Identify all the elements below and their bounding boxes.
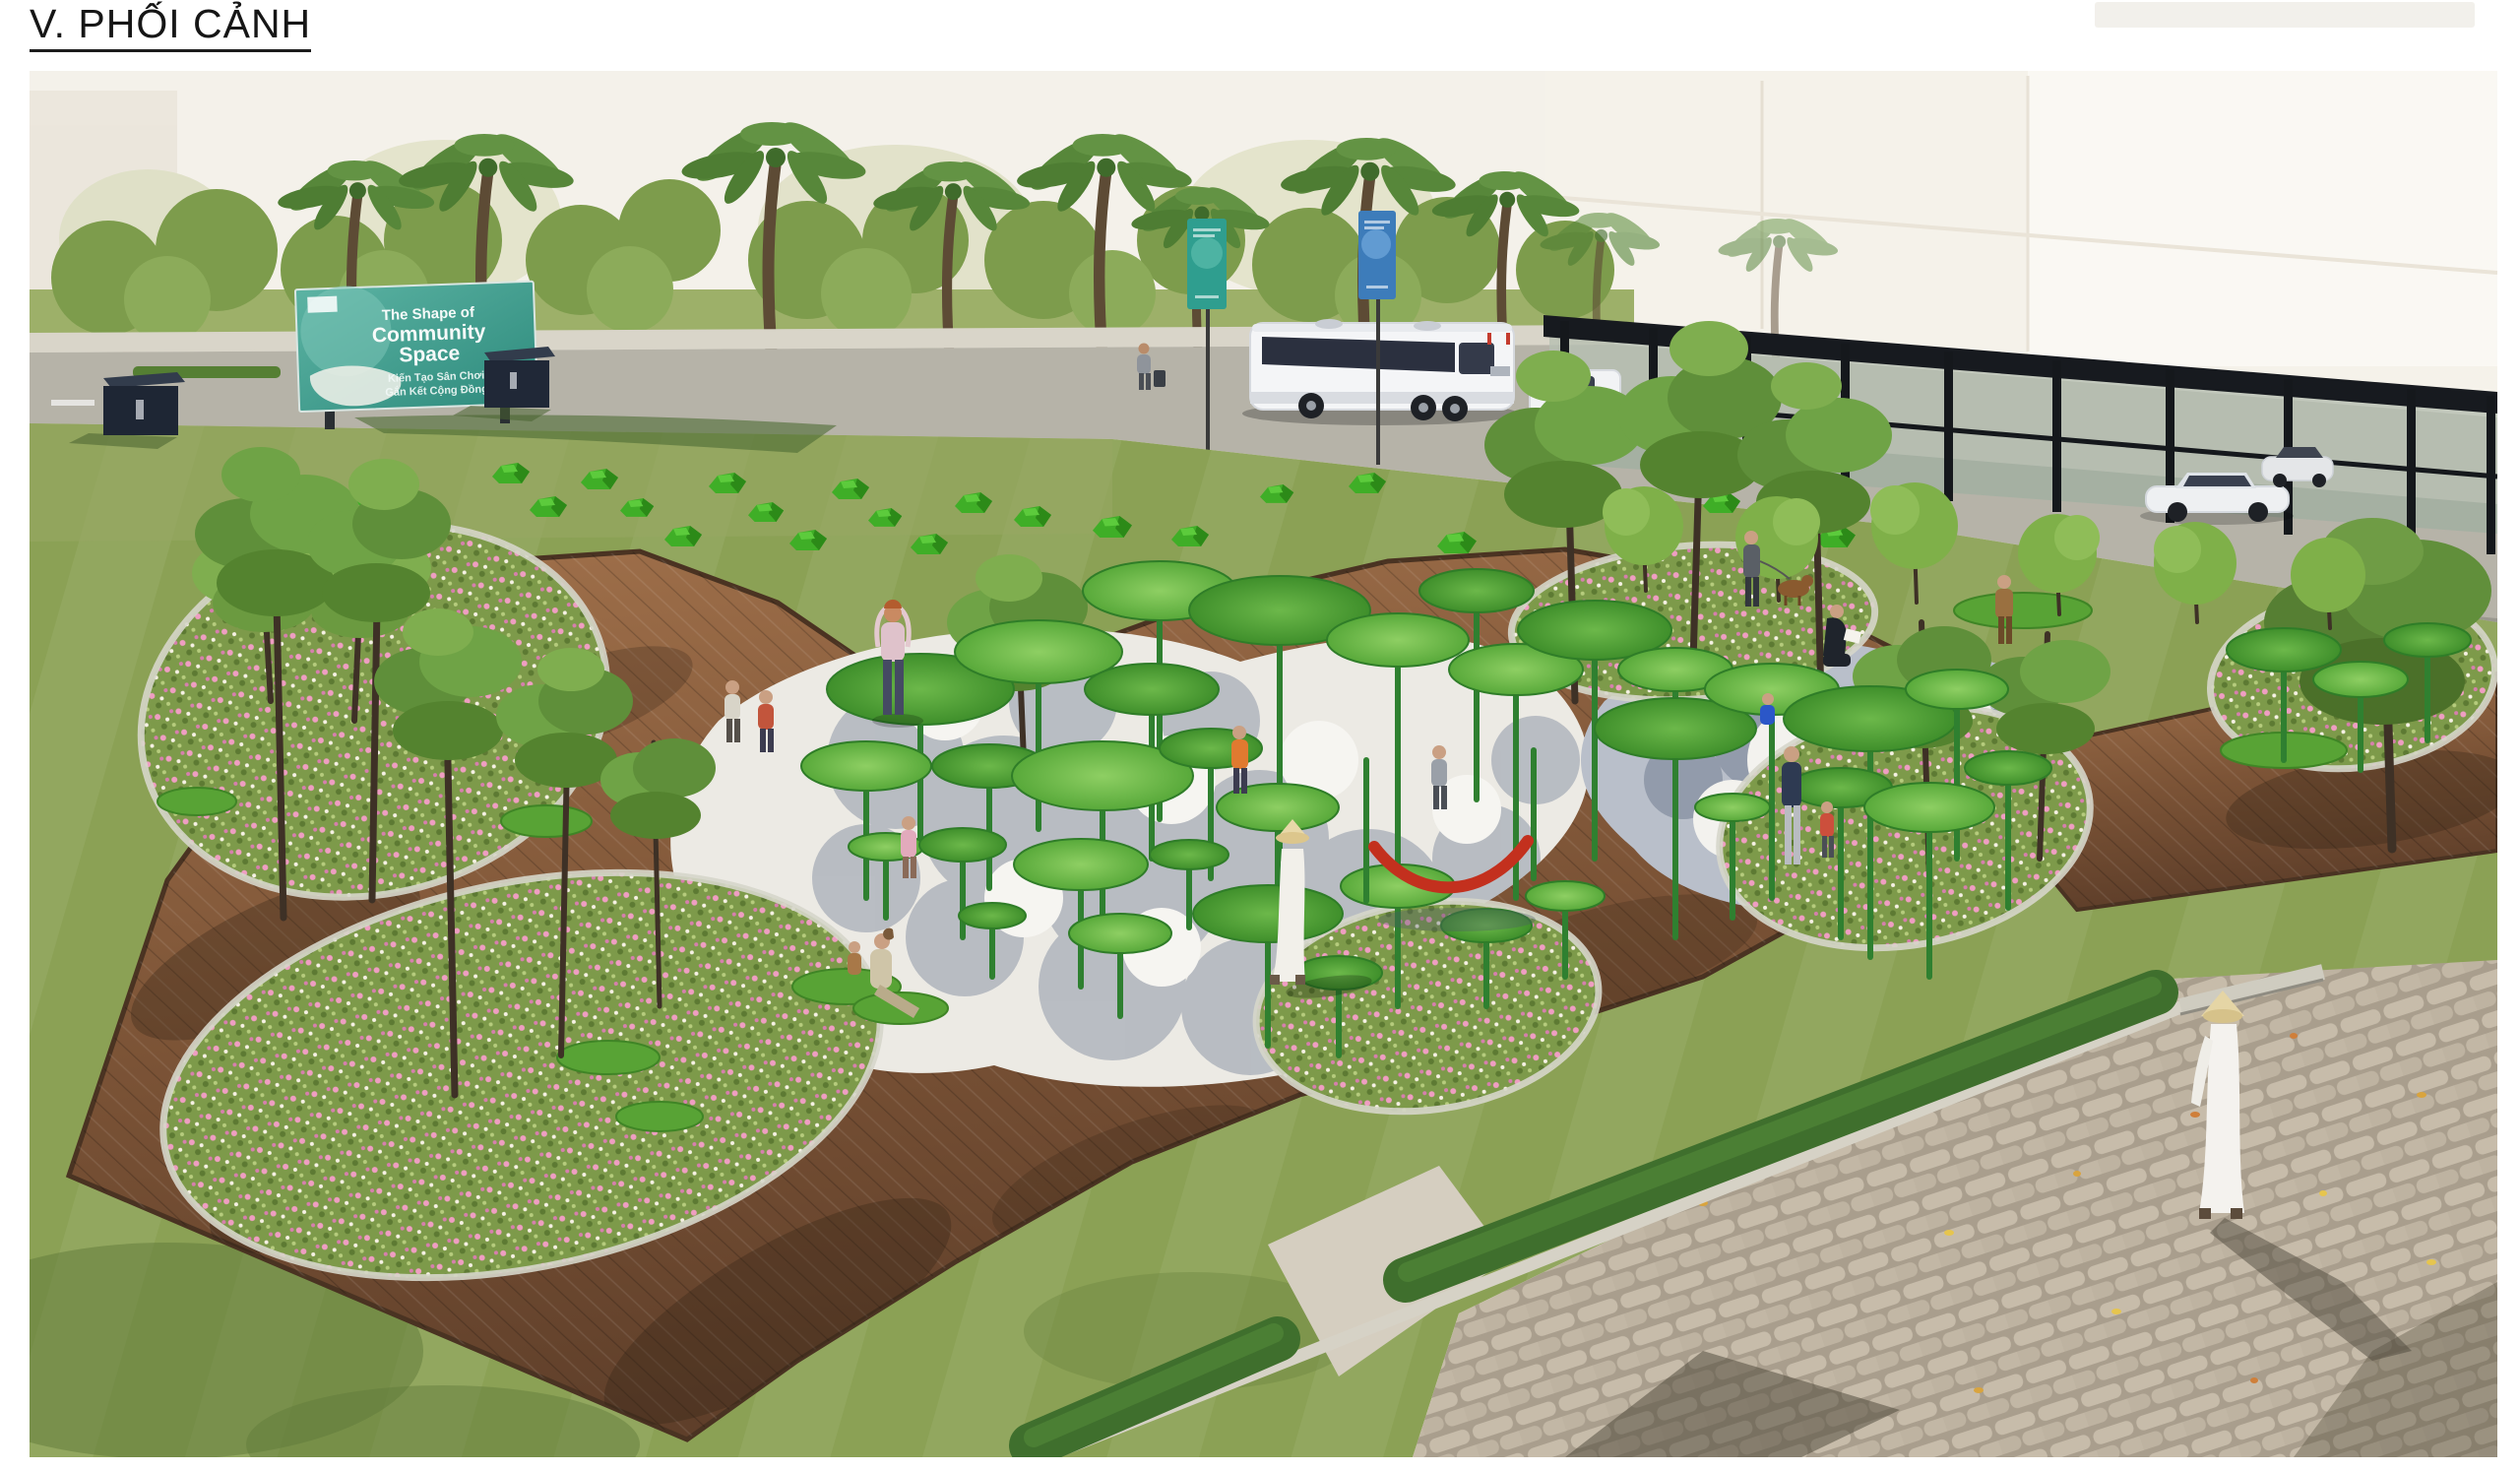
toddler-pink bbox=[901, 816, 916, 878]
page-title: V. PHỐI CẢNH bbox=[30, 2, 311, 52]
child-near-hammock bbox=[1431, 745, 1447, 809]
perspective-render: The Shape of Community Space Kiến Tạo Sâ… bbox=[30, 71, 2497, 1457]
watermark-band bbox=[2095, 2, 2475, 28]
billboard-title-3: Space bbox=[399, 342, 461, 366]
child-blue-sitting bbox=[1760, 693, 1775, 725]
